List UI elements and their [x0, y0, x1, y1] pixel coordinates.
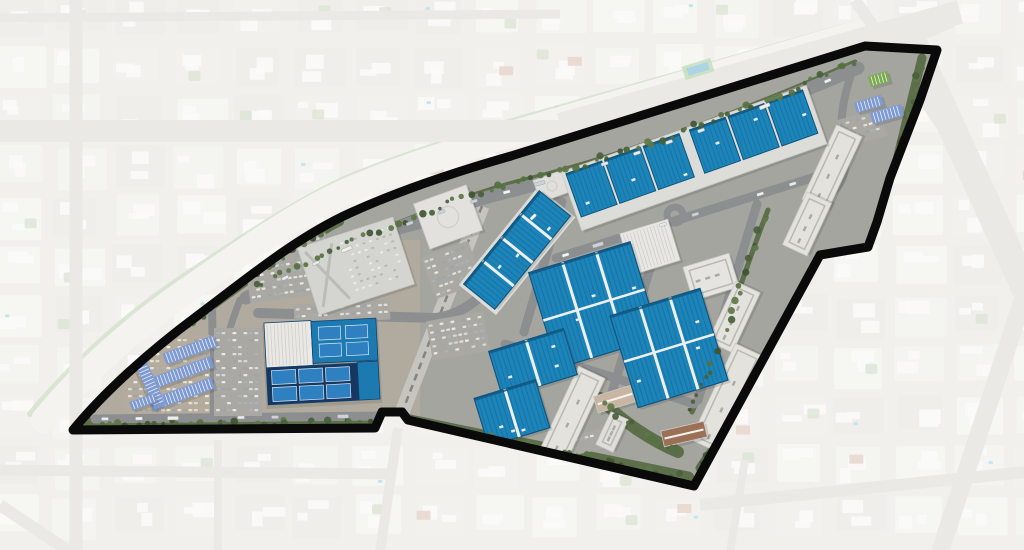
- tree: [537, 172, 544, 179]
- parked-car: [227, 409, 231, 411]
- parked-car: [233, 388, 237, 390]
- parked-car: [134, 388, 138, 390]
- tree: [742, 269, 749, 276]
- parked-car: [362, 305, 366, 307]
- car: [135, 417, 142, 420]
- tree: [912, 72, 919, 79]
- vehicle-body: [237, 416, 244, 419]
- tree: [670, 445, 675, 450]
- tree: [623, 147, 629, 153]
- parked-car: [161, 367, 165, 369]
- parked-car: [178, 339, 182, 341]
- tree: [303, 262, 308, 267]
- tree: [254, 281, 260, 287]
- tree: [704, 375, 708, 379]
- rooftop-court: [318, 326, 341, 340]
- tree: [753, 226, 760, 233]
- tree: [725, 111, 730, 116]
- tree: [658, 444, 663, 449]
- parked-car: [238, 360, 242, 362]
- tree: [602, 400, 607, 405]
- tree: [921, 66, 925, 70]
- tree: [395, 220, 402, 227]
- parked-car: [244, 388, 248, 390]
- tree: [230, 418, 238, 426]
- tree: [698, 122, 704, 128]
- rooftop-court: [271, 369, 296, 384]
- parked-car: [255, 388, 259, 390]
- tree: [604, 156, 608, 160]
- tree: [691, 400, 695, 404]
- parked-car: [255, 395, 259, 397]
- parked-car: [227, 367, 231, 369]
- parked-car: [172, 409, 176, 411]
- parked-car: [346, 313, 350, 315]
- tree: [718, 112, 724, 118]
- tree: [776, 93, 784, 101]
- parked-car: [255, 353, 259, 355]
- parked-car: [128, 388, 132, 390]
- tree: [458, 194, 463, 199]
- parked-car: [296, 315, 300, 317]
- car: [101, 417, 108, 420]
- tree: [607, 403, 614, 410]
- tree: [644, 432, 649, 437]
- tree: [688, 408, 692, 412]
- parked-car: [189, 409, 193, 411]
- tree: [914, 89, 918, 93]
- tree: [825, 73, 829, 77]
- tree: [273, 274, 277, 278]
- tree: [557, 167, 563, 173]
- tree: [852, 62, 857, 67]
- tree: [596, 152, 603, 159]
- parked-car: [357, 312, 361, 314]
- parked-car: [145, 409, 149, 411]
- parked-car: [296, 308, 300, 310]
- parked-car: [167, 409, 171, 411]
- rooftop-court: [325, 367, 350, 382]
- tree: [731, 297, 738, 304]
- vehicle-body: [337, 415, 348, 419]
- tree: [411, 214, 417, 220]
- tree: [714, 348, 721, 355]
- tree: [516, 179, 521, 184]
- parked-car: [233, 332, 237, 334]
- tree: [222, 420, 227, 425]
- sports-complex: [262, 317, 382, 409]
- parked-car: [249, 381, 253, 383]
- parked-car: [302, 315, 306, 317]
- vehicle-body: [135, 417, 142, 420]
- parked-car: [233, 367, 237, 369]
- parked-car: [255, 339, 259, 341]
- tree: [319, 253, 324, 258]
- tree: [366, 229, 373, 236]
- tree: [315, 255, 321, 261]
- tree: [694, 393, 698, 397]
- parked-car: [238, 402, 242, 404]
- tree: [478, 191, 484, 197]
- parked-car: [244, 332, 248, 334]
- tree: [796, 87, 801, 92]
- tree: [736, 283, 742, 289]
- parked-car: [238, 374, 242, 376]
- tree: [748, 105, 753, 110]
- parked-car: [183, 339, 187, 341]
- aerial-site-plan-image: [0, 0, 1024, 550]
- parked-car: [378, 304, 382, 306]
- tree: [803, 81, 807, 85]
- vehicle-body: [167, 416, 178, 420]
- tree: [114, 419, 121, 426]
- tree: [107, 421, 112, 426]
- parked-car: [238, 353, 242, 355]
- parked-car: [255, 367, 259, 369]
- parked-car: [150, 367, 154, 369]
- parked-car: [233, 346, 237, 348]
- parked-car: [222, 409, 226, 411]
- parked-car: [134, 381, 138, 383]
- parked-car: [255, 332, 259, 334]
- tree: [725, 328, 729, 332]
- tree: [763, 217, 768, 222]
- parked-car: [178, 409, 182, 411]
- parked-car: [167, 367, 171, 369]
- parked-car: [227, 388, 231, 390]
- tree: [629, 419, 634, 424]
- parked-car: [249, 332, 253, 334]
- parked-car: [222, 388, 226, 390]
- parked-car: [205, 395, 209, 397]
- parked-car: [384, 304, 388, 306]
- parked-car: [233, 339, 237, 341]
- tree: [361, 232, 366, 237]
- parked-car: [233, 360, 237, 362]
- car: [237, 416, 244, 419]
- tree: [336, 246, 340, 250]
- parked-car: [249, 339, 253, 341]
- rooftop-court: [319, 343, 342, 357]
- tree: [634, 428, 638, 432]
- tree: [683, 127, 687, 131]
- rooftop-court: [346, 342, 369, 356]
- parked-car: [167, 346, 171, 348]
- parked-car: [244, 360, 248, 362]
- parked-car: [205, 409, 209, 411]
- parked-car: [249, 409, 253, 411]
- parked-car: [216, 332, 220, 334]
- parked-car: [249, 395, 253, 397]
- parked-car: [139, 395, 143, 397]
- parked-car: [222, 367, 226, 369]
- tree: [546, 172, 551, 177]
- parked-car: [233, 409, 237, 411]
- tree: [528, 175, 533, 180]
- tree: [746, 265, 750, 269]
- parked-car: [312, 307, 316, 309]
- tree: [259, 283, 263, 287]
- parked-car: [238, 381, 242, 383]
- parked-car: [222, 395, 226, 397]
- parked-car: [244, 395, 248, 397]
- parked-car: [244, 374, 248, 376]
- parked-car: [255, 381, 259, 383]
- parked-car: [238, 395, 242, 397]
- parked-car: [194, 409, 198, 411]
- tree: [277, 270, 283, 276]
- parked-car: [134, 395, 138, 397]
- truck: [167, 416, 178, 420]
- tree: [445, 200, 449, 204]
- tree: [450, 197, 454, 201]
- parked-car: [216, 374, 220, 376]
- tree: [617, 148, 623, 154]
- parked-car: [351, 312, 355, 314]
- parked-car: [189, 381, 193, 383]
- tree: [728, 316, 735, 323]
- tree: [711, 119, 715, 123]
- parked-car: [222, 332, 226, 334]
- parked-car: [227, 339, 231, 341]
- rooftop-court: [326, 384, 351, 399]
- vehicle-body: [101, 417, 108, 420]
- rooftop-court: [345, 325, 368, 339]
- tree: [286, 268, 291, 273]
- tree: [789, 90, 796, 97]
- parked-car: [244, 381, 248, 383]
- parked-car: [216, 360, 220, 362]
- rooftop-court: [272, 386, 297, 401]
- tree: [659, 137, 666, 144]
- tree: [738, 107, 742, 111]
- tree: [350, 237, 354, 241]
- parked-car: [128, 395, 132, 397]
- tree: [346, 418, 352, 424]
- tree: [572, 164, 580, 172]
- tree: [769, 94, 776, 101]
- parked-car: [384, 311, 388, 313]
- parked-car: [167, 388, 171, 390]
- parked-car: [368, 311, 372, 313]
- tree: [345, 240, 349, 244]
- parking-lot: [214, 328, 262, 416]
- parked-car: [249, 402, 253, 404]
- parked-car: [183, 409, 187, 411]
- tree: [429, 210, 435, 216]
- tree: [674, 448, 679, 453]
- tree: [708, 370, 713, 375]
- parked-car: [244, 402, 248, 404]
- rooftop-court: [299, 385, 324, 400]
- tree: [676, 470, 682, 476]
- tree: [327, 248, 333, 254]
- parked-car: [367, 304, 371, 306]
- tree: [728, 307, 735, 314]
- parked-car: [222, 353, 226, 355]
- site-map-svg: [0, 0, 1024, 550]
- tree: [753, 245, 759, 251]
- tree: [294, 263, 301, 270]
- tree: [690, 121, 697, 128]
- parked-car: [227, 402, 231, 404]
- tree: [388, 225, 394, 231]
- tree: [707, 361, 713, 367]
- tree: [647, 141, 654, 148]
- parked-car: [189, 402, 193, 404]
- parked-car: [233, 353, 237, 355]
- parked-car: [313, 314, 317, 316]
- sports-complex-roof: [357, 361, 380, 400]
- parked-car: [172, 388, 176, 390]
- tree: [562, 166, 569, 173]
- parked-car: [238, 346, 242, 348]
- parked-car: [194, 402, 198, 404]
- tree: [817, 71, 824, 78]
- car: [271, 416, 278, 419]
- parked-car: [150, 360, 154, 362]
- tree: [700, 383, 704, 387]
- tree: [490, 189, 494, 193]
- tree: [612, 413, 619, 420]
- parked-car: [205, 374, 209, 376]
- tree: [494, 181, 501, 188]
- parked-car: [156, 360, 160, 362]
- rooftop-court: [298, 368, 323, 383]
- parked-car: [249, 388, 253, 390]
- tree: [419, 210, 426, 217]
- truck: [337, 415, 348, 419]
- tree: [738, 291, 743, 296]
- tree: [438, 207, 442, 211]
- tree: [582, 164, 587, 169]
- parked-car: [255, 374, 259, 376]
- parked-car: [255, 402, 259, 404]
- parked-car: [205, 402, 209, 404]
- parked-car: [379, 311, 383, 313]
- tree: [839, 63, 846, 70]
- parked-car: [255, 409, 259, 411]
- parked-car: [307, 308, 311, 310]
- tree: [745, 255, 752, 262]
- tree: [648, 435, 655, 442]
- parked-car: [222, 381, 226, 383]
- parked-car: [216, 395, 220, 397]
- parked-car: [335, 313, 339, 315]
- tree: [161, 422, 165, 426]
- parked-car: [194, 339, 198, 341]
- parked-car: [216, 381, 220, 383]
- parked-car: [222, 374, 226, 376]
- parked-car: [156, 367, 160, 369]
- vehicle-body: [271, 416, 278, 419]
- tree: [636, 146, 640, 150]
- tree: [376, 229, 382, 235]
- tree: [500, 185, 505, 190]
- tree: [808, 77, 812, 81]
- tree: [521, 176, 526, 181]
- tree: [468, 191, 475, 198]
- parked-car: [249, 367, 253, 369]
- parked-car: [216, 409, 220, 411]
- parked-car: [340, 313, 344, 315]
- parked-car: [244, 367, 248, 369]
